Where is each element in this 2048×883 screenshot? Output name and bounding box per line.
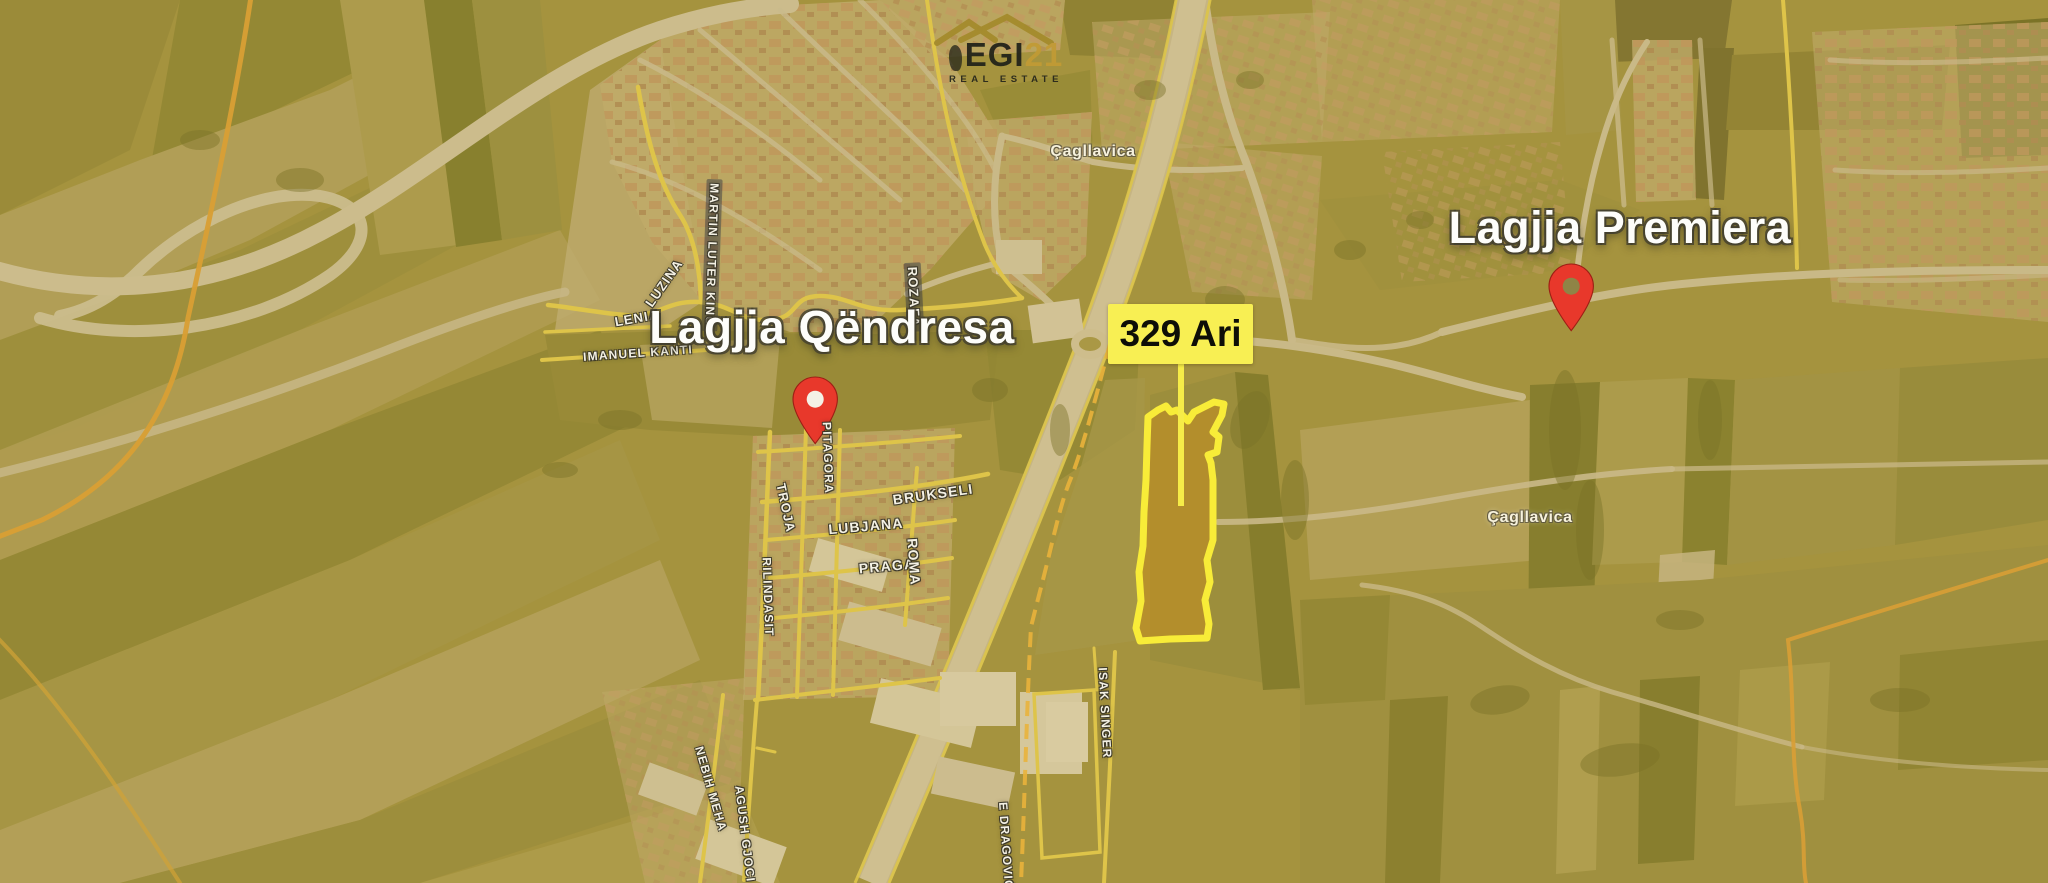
street-label-rilindasit: RILINDASIT bbox=[760, 557, 777, 637]
location-pin-icon[interactable] bbox=[1549, 264, 1593, 331]
logo-text: EGI bbox=[965, 38, 1025, 71]
town-label-cagllavica-1: Çagllavica bbox=[1050, 143, 1135, 161]
parcel-area-tag[interactable]: 329 Ari bbox=[1108, 304, 1253, 364]
brand-logo: EGI 21 REAL ESTATE bbox=[922, 10, 1090, 85]
street-label-roma: ROMA bbox=[904, 538, 923, 587]
annotations-layer bbox=[0, 0, 2048, 883]
logo-subtitle: REAL ESTATE bbox=[949, 74, 1063, 85]
neighborhood-title-qendresa: Lagjja Qëndresa bbox=[649, 300, 1014, 354]
town-label-cagllavica-2: Çagllavica bbox=[1487, 509, 1572, 527]
cadastral-boundary-line bbox=[1021, 322, 1116, 883]
logo-figure-icon bbox=[949, 45, 962, 71]
street-label-pitagora: PITAGORA bbox=[820, 422, 837, 494]
logo-number: 21 bbox=[1025, 38, 1064, 71]
map-canvas[interactable]: EGI 21 REAL ESTATE Lagjja Qëndresa Lagjj… bbox=[0, 0, 2048, 883]
neighborhood-title-premiera: Lagjja Premiera bbox=[1449, 202, 1792, 254]
